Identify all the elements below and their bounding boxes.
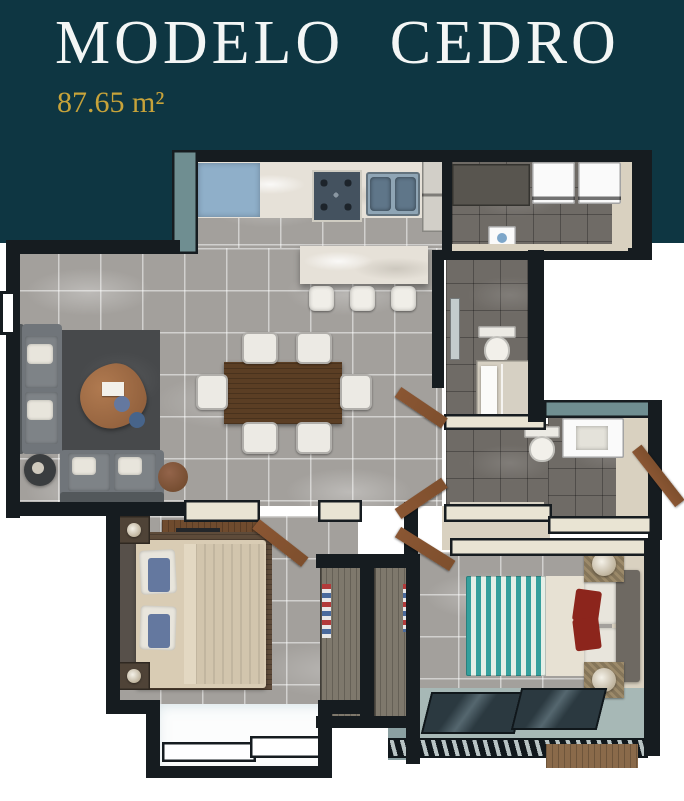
toilet-icon bbox=[529, 436, 555, 462]
bed2-chevron-blanket bbox=[466, 576, 546, 676]
throw-pillow bbox=[27, 400, 53, 420]
faucet-dot bbox=[497, 233, 507, 243]
lamp-icon bbox=[127, 669, 141, 683]
left-window bbox=[0, 291, 16, 335]
bathroom-mirror bbox=[450, 298, 460, 360]
wall-bedroom1-top-b bbox=[318, 500, 362, 522]
dining-chair bbox=[296, 422, 332, 454]
stove-icon bbox=[312, 170, 362, 222]
sink-basin-left bbox=[370, 177, 391, 211]
nightstand bbox=[118, 662, 150, 690]
bed1 bbox=[136, 540, 266, 688]
floor-plan-page: MODELO CEDRO 87.65 m² bbox=[0, 0, 684, 801]
terrace-deck bbox=[546, 744, 638, 768]
bay-window-pane bbox=[162, 742, 256, 762]
wall-laundry-right bbox=[632, 150, 652, 260]
pouf bbox=[114, 396, 130, 412]
model-title: MODELO CEDRO bbox=[55, 8, 620, 79]
terrace-glass-door bbox=[421, 692, 525, 734]
accent-pillow-blue bbox=[148, 614, 170, 648]
wall-kitchen-left bbox=[172, 150, 198, 254]
bar-stool bbox=[309, 286, 334, 311]
wall-vanity-bottom bbox=[548, 516, 652, 534]
dining-chair bbox=[242, 422, 278, 454]
bar-stool bbox=[391, 286, 416, 311]
wall-bedroom2-right bbox=[644, 538, 660, 756]
sofa-horizontal bbox=[60, 450, 164, 506]
nightstand bbox=[118, 516, 150, 544]
wall-closet-bottom bbox=[316, 716, 420, 728]
wall-living-top bbox=[6, 240, 180, 254]
wall-bedroom2-top bbox=[450, 538, 650, 556]
wall-bay-left bbox=[146, 700, 160, 776]
vanity-cabinet bbox=[562, 418, 624, 458]
dining-chair bbox=[296, 332, 332, 364]
laundry-counter bbox=[452, 164, 530, 206]
duvet bbox=[186, 544, 264, 684]
dining-chair bbox=[340, 374, 372, 410]
accent-pillow-red bbox=[572, 617, 602, 652]
ottoman bbox=[158, 462, 188, 492]
shower-area bbox=[476, 360, 530, 420]
accent-pillow-blue bbox=[148, 558, 170, 592]
side-table bbox=[24, 454, 56, 486]
bar-stool bbox=[350, 286, 375, 311]
kitchen-island bbox=[300, 246, 428, 284]
wall-bathroom1-right bbox=[528, 250, 544, 422]
wall-corridor bbox=[432, 250, 444, 388]
wall-bedroom2-left bbox=[406, 554, 420, 764]
lamp-icon bbox=[127, 523, 141, 537]
fridge-icon bbox=[422, 158, 444, 232]
coffee-table-book bbox=[102, 382, 124, 396]
wall-closet-divider bbox=[360, 554, 374, 726]
pouf bbox=[129, 412, 145, 428]
terrace-glass-door bbox=[511, 688, 607, 730]
wall-bedroom1-top-a bbox=[184, 500, 260, 522]
area-text: 87.65 m² bbox=[57, 86, 164, 120]
dining-chair bbox=[196, 374, 228, 410]
double-sink-icon bbox=[366, 172, 420, 216]
wall-living-bottom bbox=[6, 502, 186, 516]
vanity-sink bbox=[576, 426, 608, 450]
wall-bathroom2-bottom bbox=[444, 504, 552, 522]
throw-pillow bbox=[27, 344, 53, 364]
sofa-vertical bbox=[22, 324, 62, 454]
wall-vanity-top bbox=[544, 400, 662, 418]
side-table-decor bbox=[32, 462, 44, 474]
wall-bay-right bbox=[318, 700, 332, 776]
dining-table bbox=[224, 362, 342, 424]
shower-door bbox=[481, 366, 497, 414]
wall-top bbox=[180, 150, 652, 162]
sink-basin-right bbox=[395, 177, 416, 211]
closet1-clothes bbox=[322, 584, 331, 638]
wall-bedroom1-left bbox=[106, 516, 120, 714]
wall-bay-bottom bbox=[146, 766, 332, 778]
dryer-icon bbox=[578, 162, 621, 204]
throw-pillow bbox=[72, 457, 96, 475]
shower-glass-line bbox=[501, 364, 503, 416]
washer-icon bbox=[532, 162, 575, 204]
duvet-fold bbox=[184, 544, 196, 684]
throw-pillow bbox=[118, 457, 142, 475]
dining-chair bbox=[242, 332, 278, 364]
kitchen-blue-counter bbox=[198, 163, 260, 217]
wall-left-exterior bbox=[6, 240, 20, 518]
wall-kitchen-laundry bbox=[442, 156, 452, 250]
